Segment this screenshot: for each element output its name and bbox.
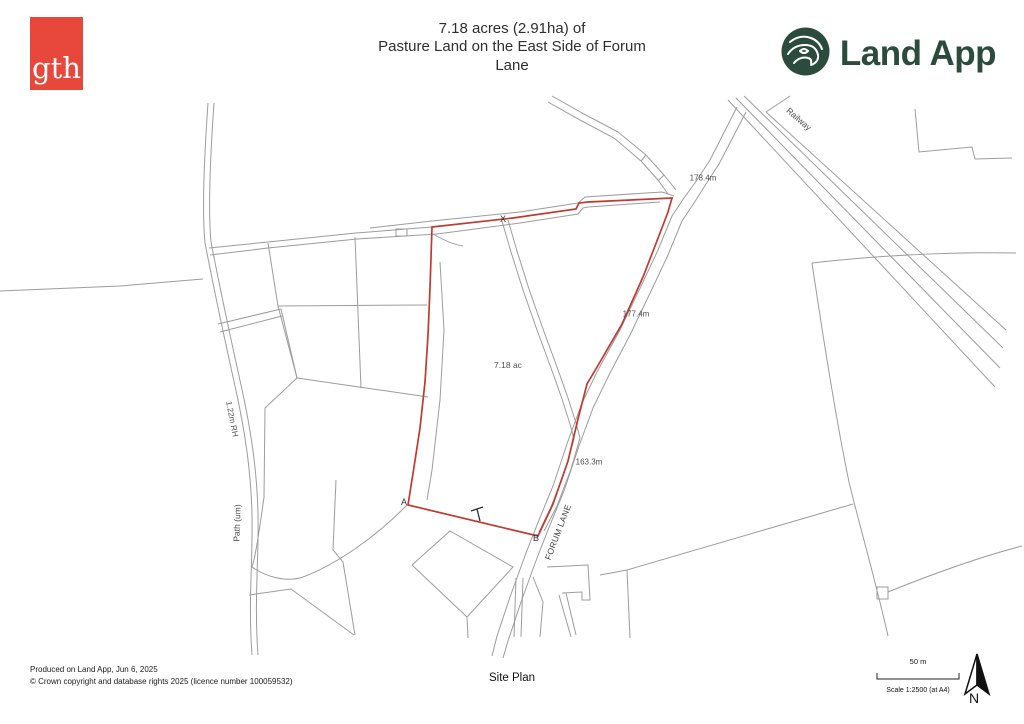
field-boundaries bbox=[0, 96, 1022, 658]
scale-bar-distance: 50 m bbox=[876, 658, 960, 666]
point-x-marker: X bbox=[500, 214, 506, 224]
plan-name: Site Plan bbox=[0, 672, 1024, 684]
parcel-boundary bbox=[408, 198, 672, 536]
dimension-east-label: 177.4m bbox=[623, 310, 650, 319]
north-arrow: N bbox=[956, 650, 1000, 712]
dimension-north-label: 178.4m bbox=[690, 174, 717, 183]
scale-ratio-text: Scale 1:2500 (at A4) bbox=[876, 687, 960, 694]
dimension-southeast-label: 163.3m bbox=[576, 458, 603, 467]
north-label: N bbox=[962, 690, 986, 706]
t-mark bbox=[471, 507, 483, 521]
point-a-marker: A bbox=[401, 497, 407, 507]
parcel-area-label: 7.18 ac bbox=[494, 360, 522, 370]
site-plan-map: X A B 7.18 ac 178.4m 177.4m 163.3m FORUM… bbox=[0, 0, 1024, 724]
scale-bar-bracket bbox=[876, 672, 960, 680]
point-b-marker: B bbox=[533, 533, 539, 543]
site-plan-page: gth 7.18 acres (2.91ha) of Pasture Land … bbox=[0, 0, 1024, 724]
scale-bar: 50 m Scale 1:2500 (at A4) bbox=[876, 658, 960, 694]
path-um-label: Path (um) bbox=[231, 504, 242, 542]
